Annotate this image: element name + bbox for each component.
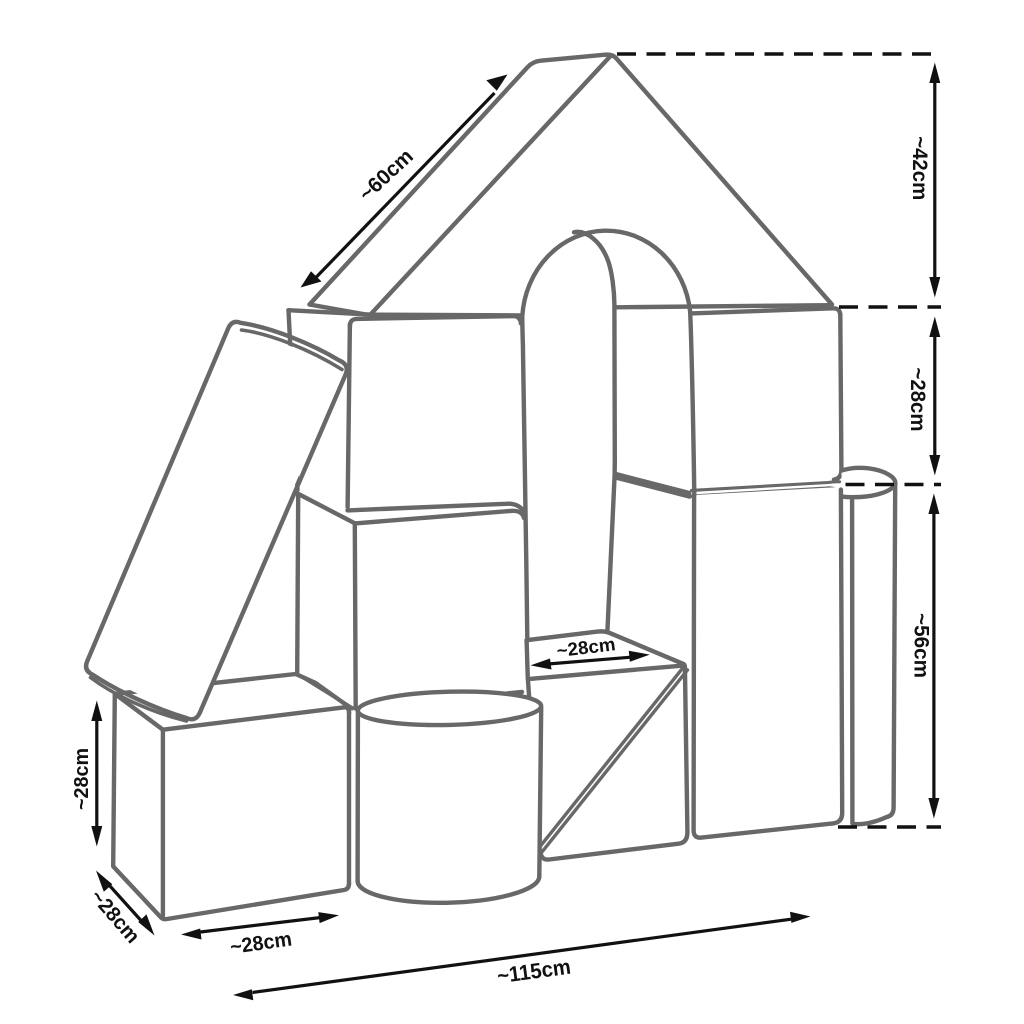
svg-text:~28cm: ~28cm <box>906 368 929 432</box>
svg-text:~28cm: ~28cm <box>229 927 294 958</box>
svg-text:~28cm: ~28cm <box>71 748 93 810</box>
svg-text:~115cm: ~115cm <box>496 955 573 989</box>
svg-text:~42cm: ~42cm <box>908 136 931 200</box>
svg-text:~56cm: ~56cm <box>910 613 933 678</box>
